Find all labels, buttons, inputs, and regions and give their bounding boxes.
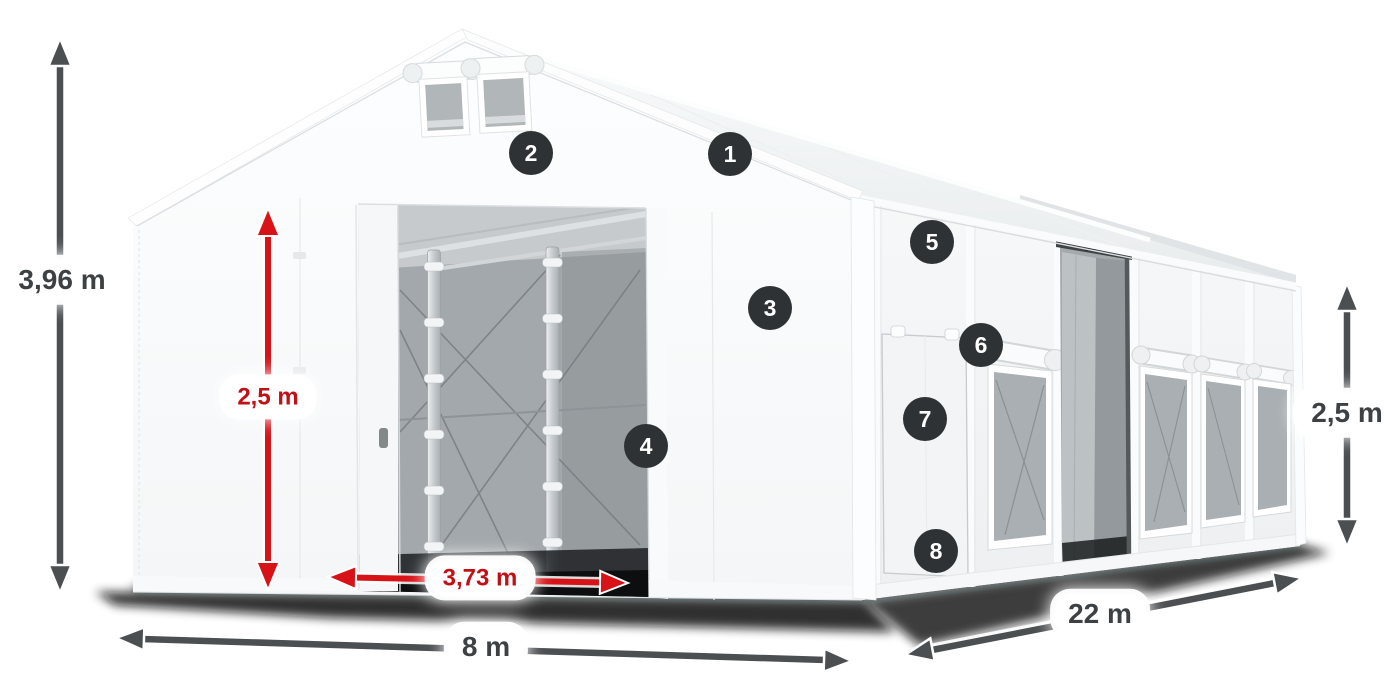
side-window-rollup-4 [1247, 364, 1299, 518]
corner-post-cover [851, 197, 876, 600]
side-doorway-opening [1056, 237, 1132, 570]
feature-marker-6: 6 [959, 323, 1003, 367]
dimension-label-entrance-width: 3,73 m [430, 560, 531, 595]
side-window-rollup-1 [975, 338, 1066, 551]
arrow-total-height [49, 38, 72, 593]
tent-dimension-diagram: 3,96 m 2,5 m 3,73 m 8 m 22 m 2,5 m 1 2 3… [0, 0, 1400, 700]
dimension-label-front-width: 8 m [449, 627, 523, 667]
dimension-label-total-height: 3,96 m [5, 260, 118, 300]
feature-marker-3: 3 [748, 286, 792, 330]
dimension-label-side-length: 22 m [1055, 594, 1145, 634]
side-window-rollup-2 [1132, 346, 1201, 539]
feature-marker-1: 1 [708, 132, 752, 176]
feature-marker-8: 8 [914, 529, 958, 573]
dimension-label-side-height: 2,5 m [1298, 393, 1396, 433]
front-sliding-door [358, 204, 400, 592]
feature-marker-4: 4 [624, 424, 668, 468]
door-handle [379, 428, 388, 448]
tent-illustration [0, 0, 1400, 700]
side-window-rollup-3 [1194, 356, 1253, 528]
dimension-label-entrance-height: 2,5 m [224, 379, 311, 414]
entrance-opening [356, 202, 652, 600]
feature-marker-2: 2 [509, 131, 553, 175]
feature-marker-5: 5 [910, 220, 954, 264]
feature-marker-7: 7 [903, 397, 947, 441]
entrance-right-jamb [646, 208, 668, 599]
